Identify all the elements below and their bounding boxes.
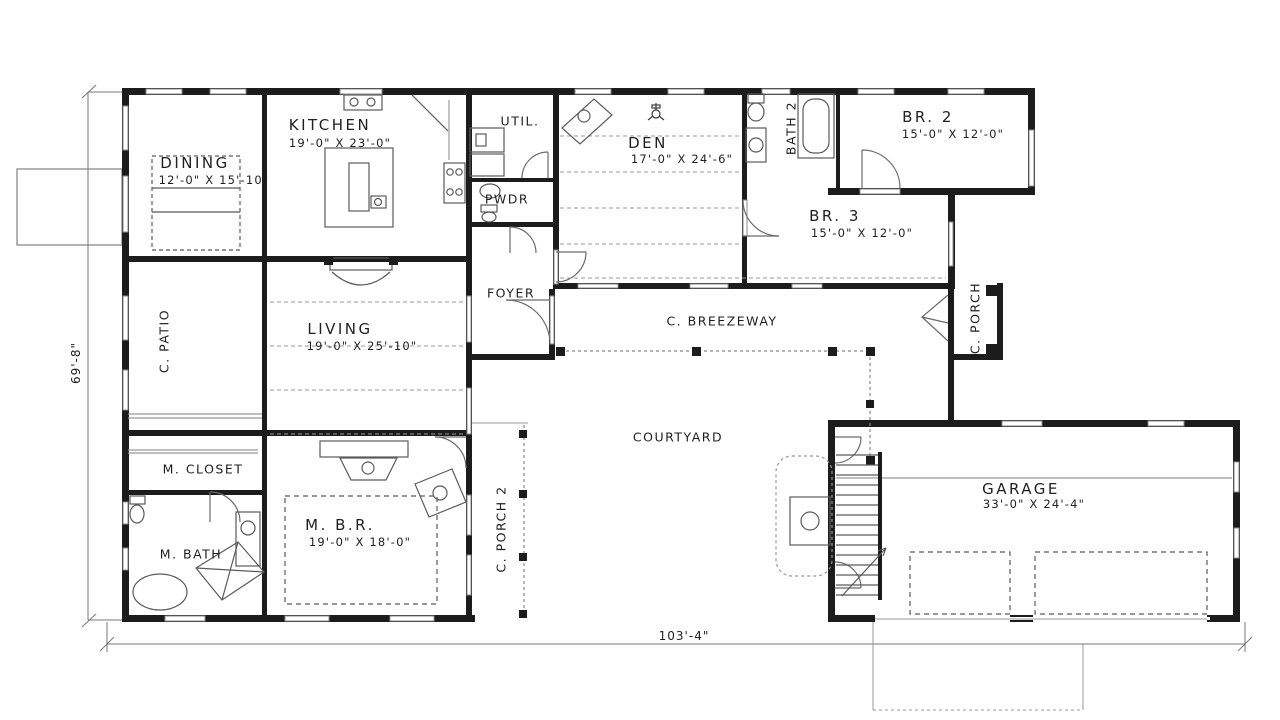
kitchen-sink-icon (344, 95, 382, 110)
room-label-garage: GARAGE (982, 480, 1060, 498)
room-dims-garage: 33'-0" X 24'-4" (983, 497, 1085, 511)
room-label-den: DEN (628, 134, 668, 152)
room-label-mbath: M. BATH (160, 547, 222, 562)
room-dims-br3: 15'-0" X 12'-0" (811, 226, 913, 240)
room-label-mbr: M. B.R. (305, 516, 375, 534)
outdoor-unit-icon (776, 456, 832, 576)
garage-stairs (836, 452, 886, 600)
cooktop-icon (444, 163, 465, 203)
corner-pantry-line (412, 95, 448, 131)
porch-posts (472, 347, 875, 618)
room-label-kitchen: KITCHEN (289, 116, 372, 134)
room-dims-dining: 12'-0" X 15'-10" (159, 173, 270, 187)
room-label-cporch2: C. PORCH 2 (494, 485, 509, 572)
floor-plan: KITCHEN 19'-0" X 23'-0" DINING 12'-0" X … (0, 0, 1280, 720)
room-dims-br2: 15'-0" X 12'-0" (902, 127, 1004, 141)
room-label-mcloset: M. CLOSET (163, 462, 244, 477)
room-label-br2: BR. 2 (902, 108, 954, 126)
den-armoire (562, 99, 612, 144)
room-dims-kitchen: 19'-0" X 23'-0" (289, 136, 391, 150)
floorplan-drawing (0, 0, 1280, 720)
overall-width-dimension: 103'-4" (655, 629, 714, 643)
room-label-cpatio: C. PATIO (157, 309, 172, 373)
washer-dryer-icon (470, 128, 504, 176)
overall-depth-dimension: 69'-8" (69, 342, 83, 384)
ceiling-fan-icon (648, 103, 664, 120)
room-dims-den: 17'-0" X 24'-6" (631, 152, 733, 166)
room-label-bath2: BATH 2 (784, 101, 799, 155)
room-dims-mbr: 19'-0" X 18'-0" (309, 535, 411, 549)
walls (122, 88, 1240, 622)
room-label-foyer: FOYER (487, 286, 535, 301)
room-label-util: UTIL. (501, 114, 540, 129)
room-label-cporch: C. PORCH (968, 282, 983, 354)
windows (123, 89, 1239, 621)
room-label-dining: DINING (160, 154, 229, 172)
room-dims-living: 19'-0" X 25'-10" (307, 339, 418, 353)
kitchen-island (325, 148, 393, 227)
room-label-br3: BR. 3 (809, 207, 861, 225)
room-label-courtyard: COURTYARD (633, 430, 723, 445)
room-label-living: LIVING (307, 320, 372, 338)
room-label-pwdr: PWDR (485, 192, 529, 207)
french-door-icon (922, 295, 948, 341)
room-label-breezeway: C. BREEZEWAY (666, 314, 777, 329)
garage-car-bays (910, 552, 1207, 614)
left-stoop-outline (17, 169, 122, 245)
